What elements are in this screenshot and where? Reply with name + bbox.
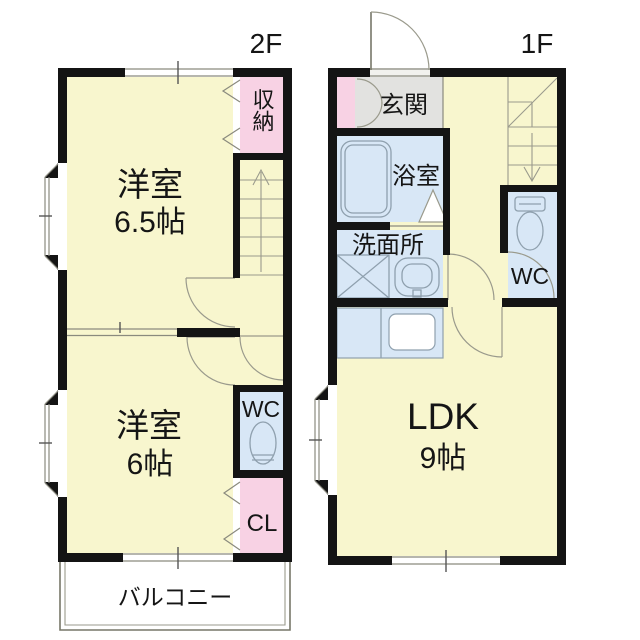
floor-2-label: 2F [250, 28, 283, 59]
f1-shoe-closet-floor [337, 77, 355, 128]
f1-entrance-door [370, 12, 430, 77]
f2-closet-bottom-door-strip [233, 478, 240, 553]
f1-ldk-name: LDK [407, 396, 479, 437]
f2-room2-size: 6帖 [127, 448, 174, 481]
f1-bath-label: 浴室 [392, 163, 440, 190]
f2-closet-top-door-strip [233, 77, 240, 153]
floor-plan-page: 2F 1F [0, 0, 640, 640]
f2-bay-window-bottom [39, 390, 58, 497]
f2-wc-label: WC [242, 396, 280, 422]
f2-balcony-label: バルコニー [118, 584, 233, 610]
f2-room2-name: 洋室 [116, 407, 182, 444]
floor-1-label: 1F [521, 28, 554, 59]
f2-room1-size: 6.5帖 [114, 206, 186, 239]
f1-washroom-label: 洗面所 [352, 232, 424, 259]
f1-kitchen-counter [337, 308, 443, 358]
f2-closet-bottom-label: CL [247, 510, 278, 537]
f1-bay-window [309, 385, 328, 495]
floor-2-plan: 洋室 6.5帖 収納 洋室 6帖 WC CL バルコニー [39, 61, 292, 630]
floor-1-plan: 玄関 浴室 洗面所 WC LDK 9帖 [309, 12, 566, 572]
f2-bay-window-top [39, 163, 58, 270]
f2-room1-name: 洋室 [117, 166, 183, 203]
f2-closet-top-label: 収納 [250, 88, 275, 132]
floor-plan-svg: 2F 1F [0, 0, 640, 640]
f1-kitchen-sink-icon [389, 314, 435, 350]
f1-ldk-size: 9帖 [420, 442, 467, 475]
f1-entrance-label: 玄関 [380, 92, 428, 119]
f1-wc-label: WC [511, 263, 549, 289]
